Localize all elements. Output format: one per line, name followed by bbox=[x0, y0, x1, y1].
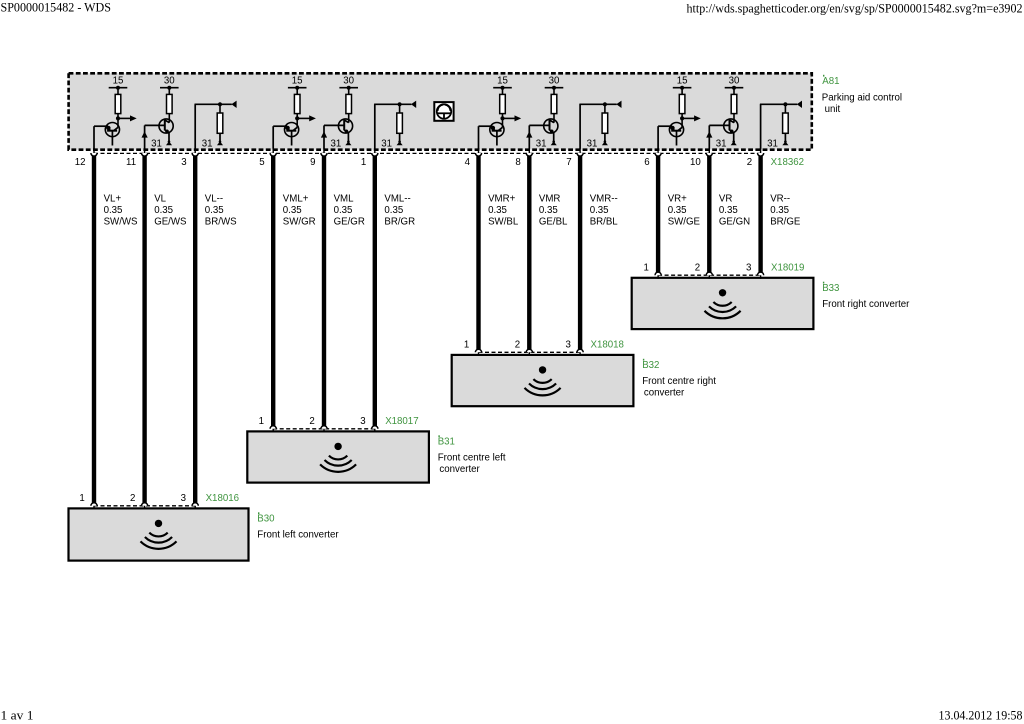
svg-text:31: 31 bbox=[381, 138, 392, 149]
svg-text:VML+: VML+ bbox=[283, 194, 309, 205]
svg-text:B31: B31 bbox=[438, 437, 455, 448]
svg-text:31: 31 bbox=[151, 138, 162, 149]
svg-text:1: 1 bbox=[361, 157, 366, 168]
svg-text:15: 15 bbox=[677, 76, 688, 87]
svg-text:3: 3 bbox=[181, 157, 186, 168]
svg-text:X18019: X18019 bbox=[771, 262, 804, 273]
svg-text:0.35: 0.35 bbox=[334, 205, 353, 216]
svg-text:30: 30 bbox=[729, 76, 740, 87]
svg-text:0.35: 0.35 bbox=[283, 205, 302, 216]
svg-text:4: 4 bbox=[465, 157, 471, 168]
svg-text:VML--: VML-- bbox=[384, 194, 410, 205]
svg-text:3: 3 bbox=[746, 262, 751, 273]
svg-text:2: 2 bbox=[747, 157, 752, 168]
svg-text:X18017: X18017 bbox=[385, 416, 418, 427]
svg-text:Front centre right: Front centre right bbox=[642, 376, 716, 387]
svg-text:3: 3 bbox=[360, 416, 365, 427]
svg-text:2: 2 bbox=[515, 340, 520, 351]
svg-text:VMR+: VMR+ bbox=[488, 194, 516, 205]
svg-text:10: 10 bbox=[690, 157, 701, 168]
svg-text:31: 31 bbox=[767, 138, 778, 149]
svg-text:2: 2 bbox=[309, 416, 314, 427]
svg-text:12: 12 bbox=[75, 157, 86, 168]
svg-text:GE/WS: GE/WS bbox=[154, 217, 187, 228]
svg-text:SW/BL: SW/BL bbox=[488, 217, 519, 228]
svg-text:B32: B32 bbox=[642, 360, 659, 371]
svg-text:BR/GR: BR/GR bbox=[384, 217, 415, 228]
svg-text:0.35: 0.35 bbox=[488, 205, 507, 216]
svg-text:VML: VML bbox=[334, 194, 355, 205]
svg-text:0.35: 0.35 bbox=[205, 205, 224, 216]
svg-text:VL+: VL+ bbox=[104, 194, 122, 205]
svg-text:X18362: X18362 bbox=[771, 157, 804, 168]
svg-text:0.35: 0.35 bbox=[668, 205, 687, 216]
svg-text:6: 6 bbox=[644, 157, 649, 168]
svg-text:30: 30 bbox=[549, 76, 560, 87]
svg-text:1: 1 bbox=[644, 262, 649, 273]
svg-text:VL: VL bbox=[154, 194, 166, 205]
svg-text:VR--: VR-- bbox=[770, 194, 790, 205]
svg-text:1: 1 bbox=[464, 340, 469, 351]
svg-text:0.35: 0.35 bbox=[154, 205, 173, 216]
svg-text:SP0000015482 - WDS: SP0000015482 - WDS bbox=[1, 0, 112, 14]
svg-text:31: 31 bbox=[587, 138, 598, 149]
svg-text:0.35: 0.35 bbox=[384, 205, 403, 216]
svg-text:0.35: 0.35 bbox=[590, 205, 609, 216]
svg-text:GE/BL: GE/BL bbox=[539, 217, 568, 228]
svg-text:unit: unit bbox=[825, 104, 841, 115]
svg-text:2: 2 bbox=[130, 493, 135, 504]
svg-text:BR/BL: BR/BL bbox=[590, 217, 619, 228]
svg-text:31: 31 bbox=[202, 138, 213, 149]
svg-text:converter: converter bbox=[439, 464, 480, 475]
svg-text:X18018: X18018 bbox=[591, 340, 624, 351]
svg-text:Front centre left: Front centre left bbox=[438, 452, 506, 463]
svg-text:BR/WS: BR/WS bbox=[205, 217, 237, 228]
svg-text:8: 8 bbox=[515, 157, 520, 168]
svg-text:1: 1 bbox=[79, 493, 84, 504]
svg-text:VMR--: VMR-- bbox=[590, 194, 618, 205]
svg-text:15: 15 bbox=[292, 76, 303, 87]
svg-text:1: 1 bbox=[259, 416, 264, 427]
svg-text:15: 15 bbox=[113, 76, 124, 87]
svg-text:GE/GR: GE/GR bbox=[334, 217, 365, 228]
svg-text:5: 5 bbox=[259, 157, 264, 168]
svg-text:X18016: X18016 bbox=[206, 493, 239, 504]
svg-text:3: 3 bbox=[181, 493, 186, 504]
svg-text:31: 31 bbox=[331, 138, 342, 149]
svg-text:Front right converter: Front right converter bbox=[822, 299, 910, 310]
svg-text:http://wds.spaghetticoder.org/: http://wds.spaghetticoder.org/en/svg/sp/… bbox=[687, 1, 1023, 16]
svg-text:VR: VR bbox=[719, 194, 732, 205]
svg-text:30: 30 bbox=[164, 76, 175, 87]
svg-text:SW/WS: SW/WS bbox=[104, 217, 138, 228]
svg-text:Parking aid control: Parking aid control bbox=[822, 92, 902, 103]
svg-text:3: 3 bbox=[566, 340, 571, 351]
svg-text:SW/GE: SW/GE bbox=[668, 217, 701, 228]
svg-text:0.35: 0.35 bbox=[719, 205, 738, 216]
svg-text:VR+: VR+ bbox=[668, 194, 687, 205]
svg-text:31: 31 bbox=[536, 138, 547, 149]
svg-text:converter: converter bbox=[644, 388, 685, 399]
svg-text:VL--: VL-- bbox=[205, 194, 223, 205]
svg-text:A81: A81 bbox=[822, 76, 839, 87]
svg-text:B33: B33 bbox=[822, 283, 839, 294]
svg-text:GE/GN: GE/GN bbox=[719, 217, 750, 228]
svg-text:0.35: 0.35 bbox=[770, 205, 789, 216]
svg-text:1 av 1: 1 av 1 bbox=[1, 707, 34, 722]
svg-text:30: 30 bbox=[343, 76, 354, 87]
svg-text:9: 9 bbox=[310, 157, 315, 168]
svg-text:BR/GE: BR/GE bbox=[770, 217, 801, 228]
svg-text:15: 15 bbox=[497, 76, 508, 87]
svg-text:SW/GR: SW/GR bbox=[283, 217, 316, 228]
svg-text:VMR: VMR bbox=[539, 194, 561, 205]
svg-text:B30: B30 bbox=[257, 514, 275, 525]
svg-text:Front left converter: Front left converter bbox=[257, 529, 339, 540]
svg-text:11: 11 bbox=[126, 157, 136, 168]
svg-text:0.35: 0.35 bbox=[539, 205, 558, 216]
svg-text:13.04.2012 19:58: 13.04.2012 19:58 bbox=[939, 708, 1023, 723]
svg-text:2: 2 bbox=[695, 262, 700, 273]
svg-text:31: 31 bbox=[716, 138, 727, 149]
svg-text:7: 7 bbox=[566, 157, 571, 168]
svg-text:0.35: 0.35 bbox=[104, 205, 123, 216]
